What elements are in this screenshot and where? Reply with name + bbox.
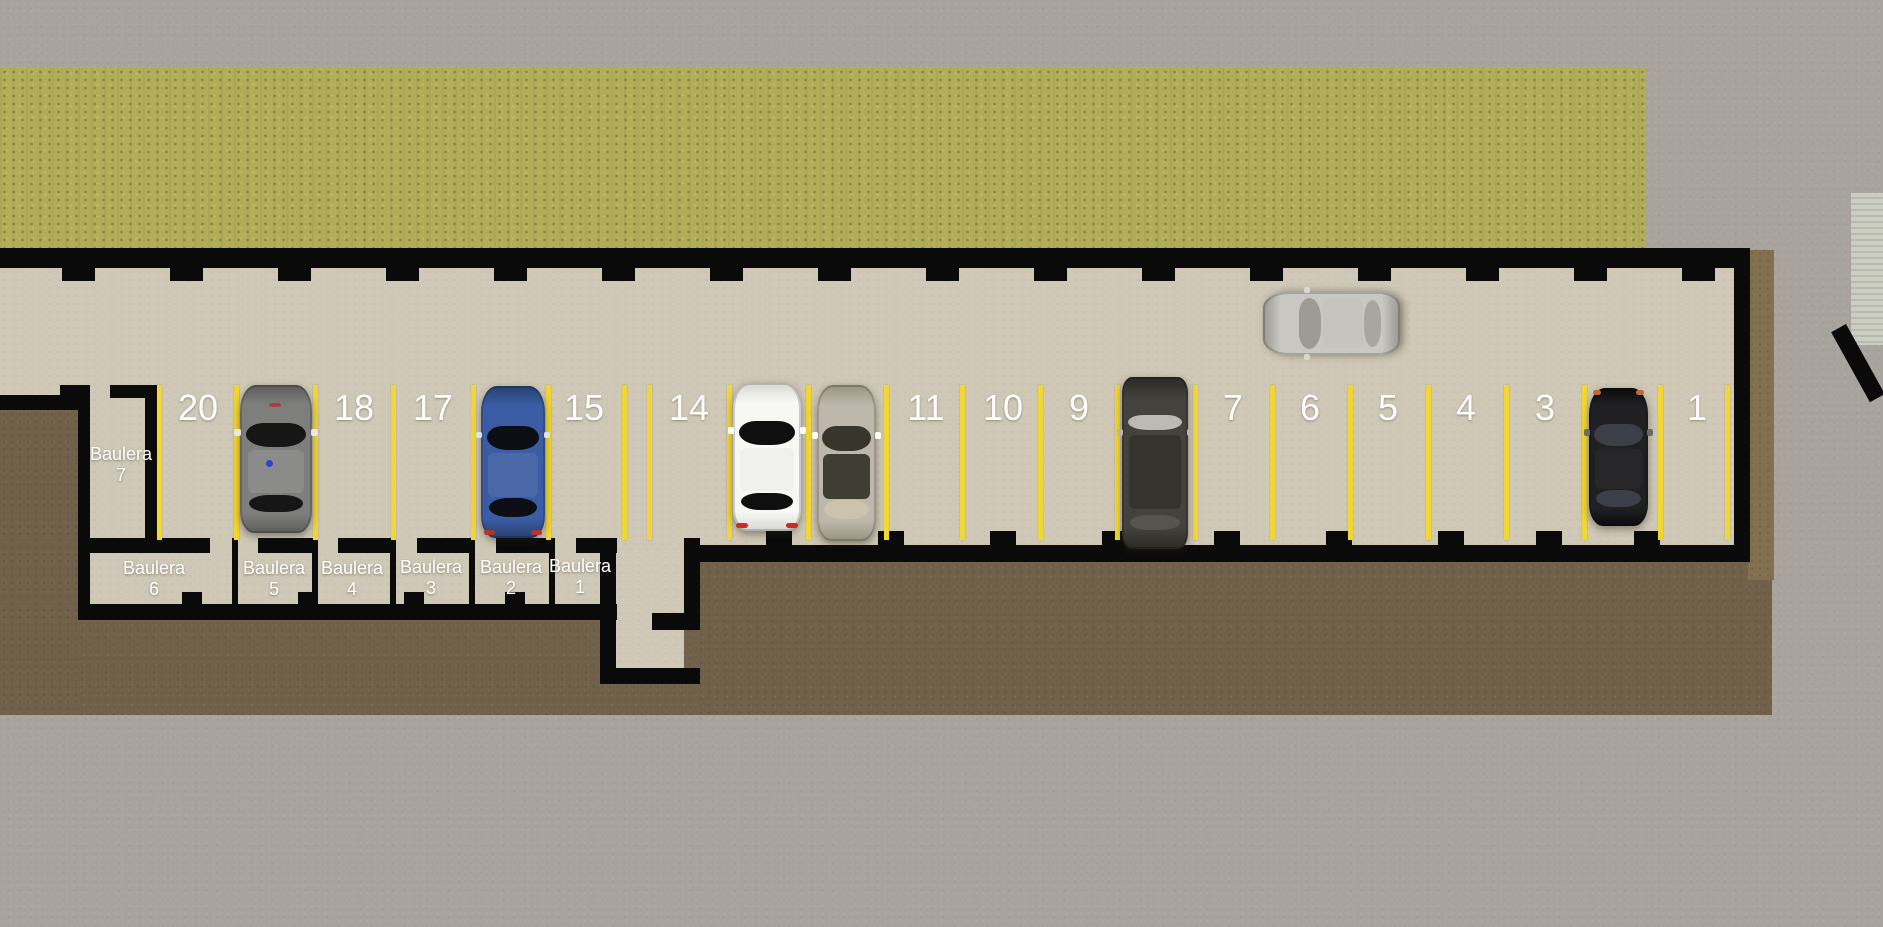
car-space-12-silver xyxy=(817,385,876,541)
car-aisle-silver xyxy=(1263,292,1400,355)
car-space-19-gray xyxy=(240,385,312,533)
car-rear-window xyxy=(489,498,538,516)
car-space-2-black xyxy=(1589,388,1648,526)
car-mirror-left xyxy=(1117,429,1124,437)
car-mirror-right xyxy=(311,429,318,436)
car-headlamp-right xyxy=(1636,390,1645,395)
car-mirror-left xyxy=(1304,354,1310,360)
car-space-16-blue xyxy=(481,386,545,538)
car-mirror-left xyxy=(728,427,735,434)
car-mirror-left xyxy=(234,429,241,436)
car-roof xyxy=(823,454,869,499)
car-windshield xyxy=(1128,415,1182,430)
car-mirror-left xyxy=(1584,429,1590,435)
car-windshield xyxy=(739,421,795,445)
car-mirror-left xyxy=(476,432,482,439)
car-mirror-left xyxy=(812,432,818,439)
car-mirror-right xyxy=(1304,287,1310,293)
car-rear-window xyxy=(824,500,869,519)
entrance-ramp xyxy=(1851,193,1883,345)
car-windshield xyxy=(487,426,539,450)
car-windshield xyxy=(1299,298,1321,350)
car-roof xyxy=(1595,449,1641,489)
car-taillight-left xyxy=(736,523,748,528)
car-roof xyxy=(740,448,793,491)
car-space-8-suv xyxy=(1122,377,1188,549)
parking-floor-plan: 201817151411109765431 Baulera7Baulera6Ba… xyxy=(0,0,1883,927)
car-roof xyxy=(1129,435,1180,509)
car-rear-window xyxy=(1596,490,1641,507)
car-rear-window xyxy=(741,493,793,511)
car-roof xyxy=(248,450,304,493)
car-taillight-right xyxy=(531,530,542,535)
car-hood-emblem xyxy=(269,403,281,407)
car-mirror-right xyxy=(800,427,807,434)
car-rear-window xyxy=(1364,300,1380,348)
car-mirror-right xyxy=(1647,429,1653,435)
car-windshield xyxy=(246,423,305,447)
car-windshield xyxy=(822,426,870,451)
car-mirror-right xyxy=(875,432,881,439)
car-rear-window xyxy=(1130,515,1180,530)
car-mirror-right xyxy=(544,432,550,439)
car-rear-window xyxy=(249,495,304,513)
car-windshield xyxy=(1594,424,1642,446)
car-roof xyxy=(488,453,538,497)
car-taillight-left xyxy=(484,530,495,535)
car-headlamp-left xyxy=(1593,390,1602,395)
car-mirror-right xyxy=(1187,429,1194,437)
car-taillight-right xyxy=(786,523,798,528)
car-space-13-white xyxy=(733,383,801,531)
cars-layer xyxy=(0,0,1883,927)
car-roof xyxy=(1323,299,1363,348)
